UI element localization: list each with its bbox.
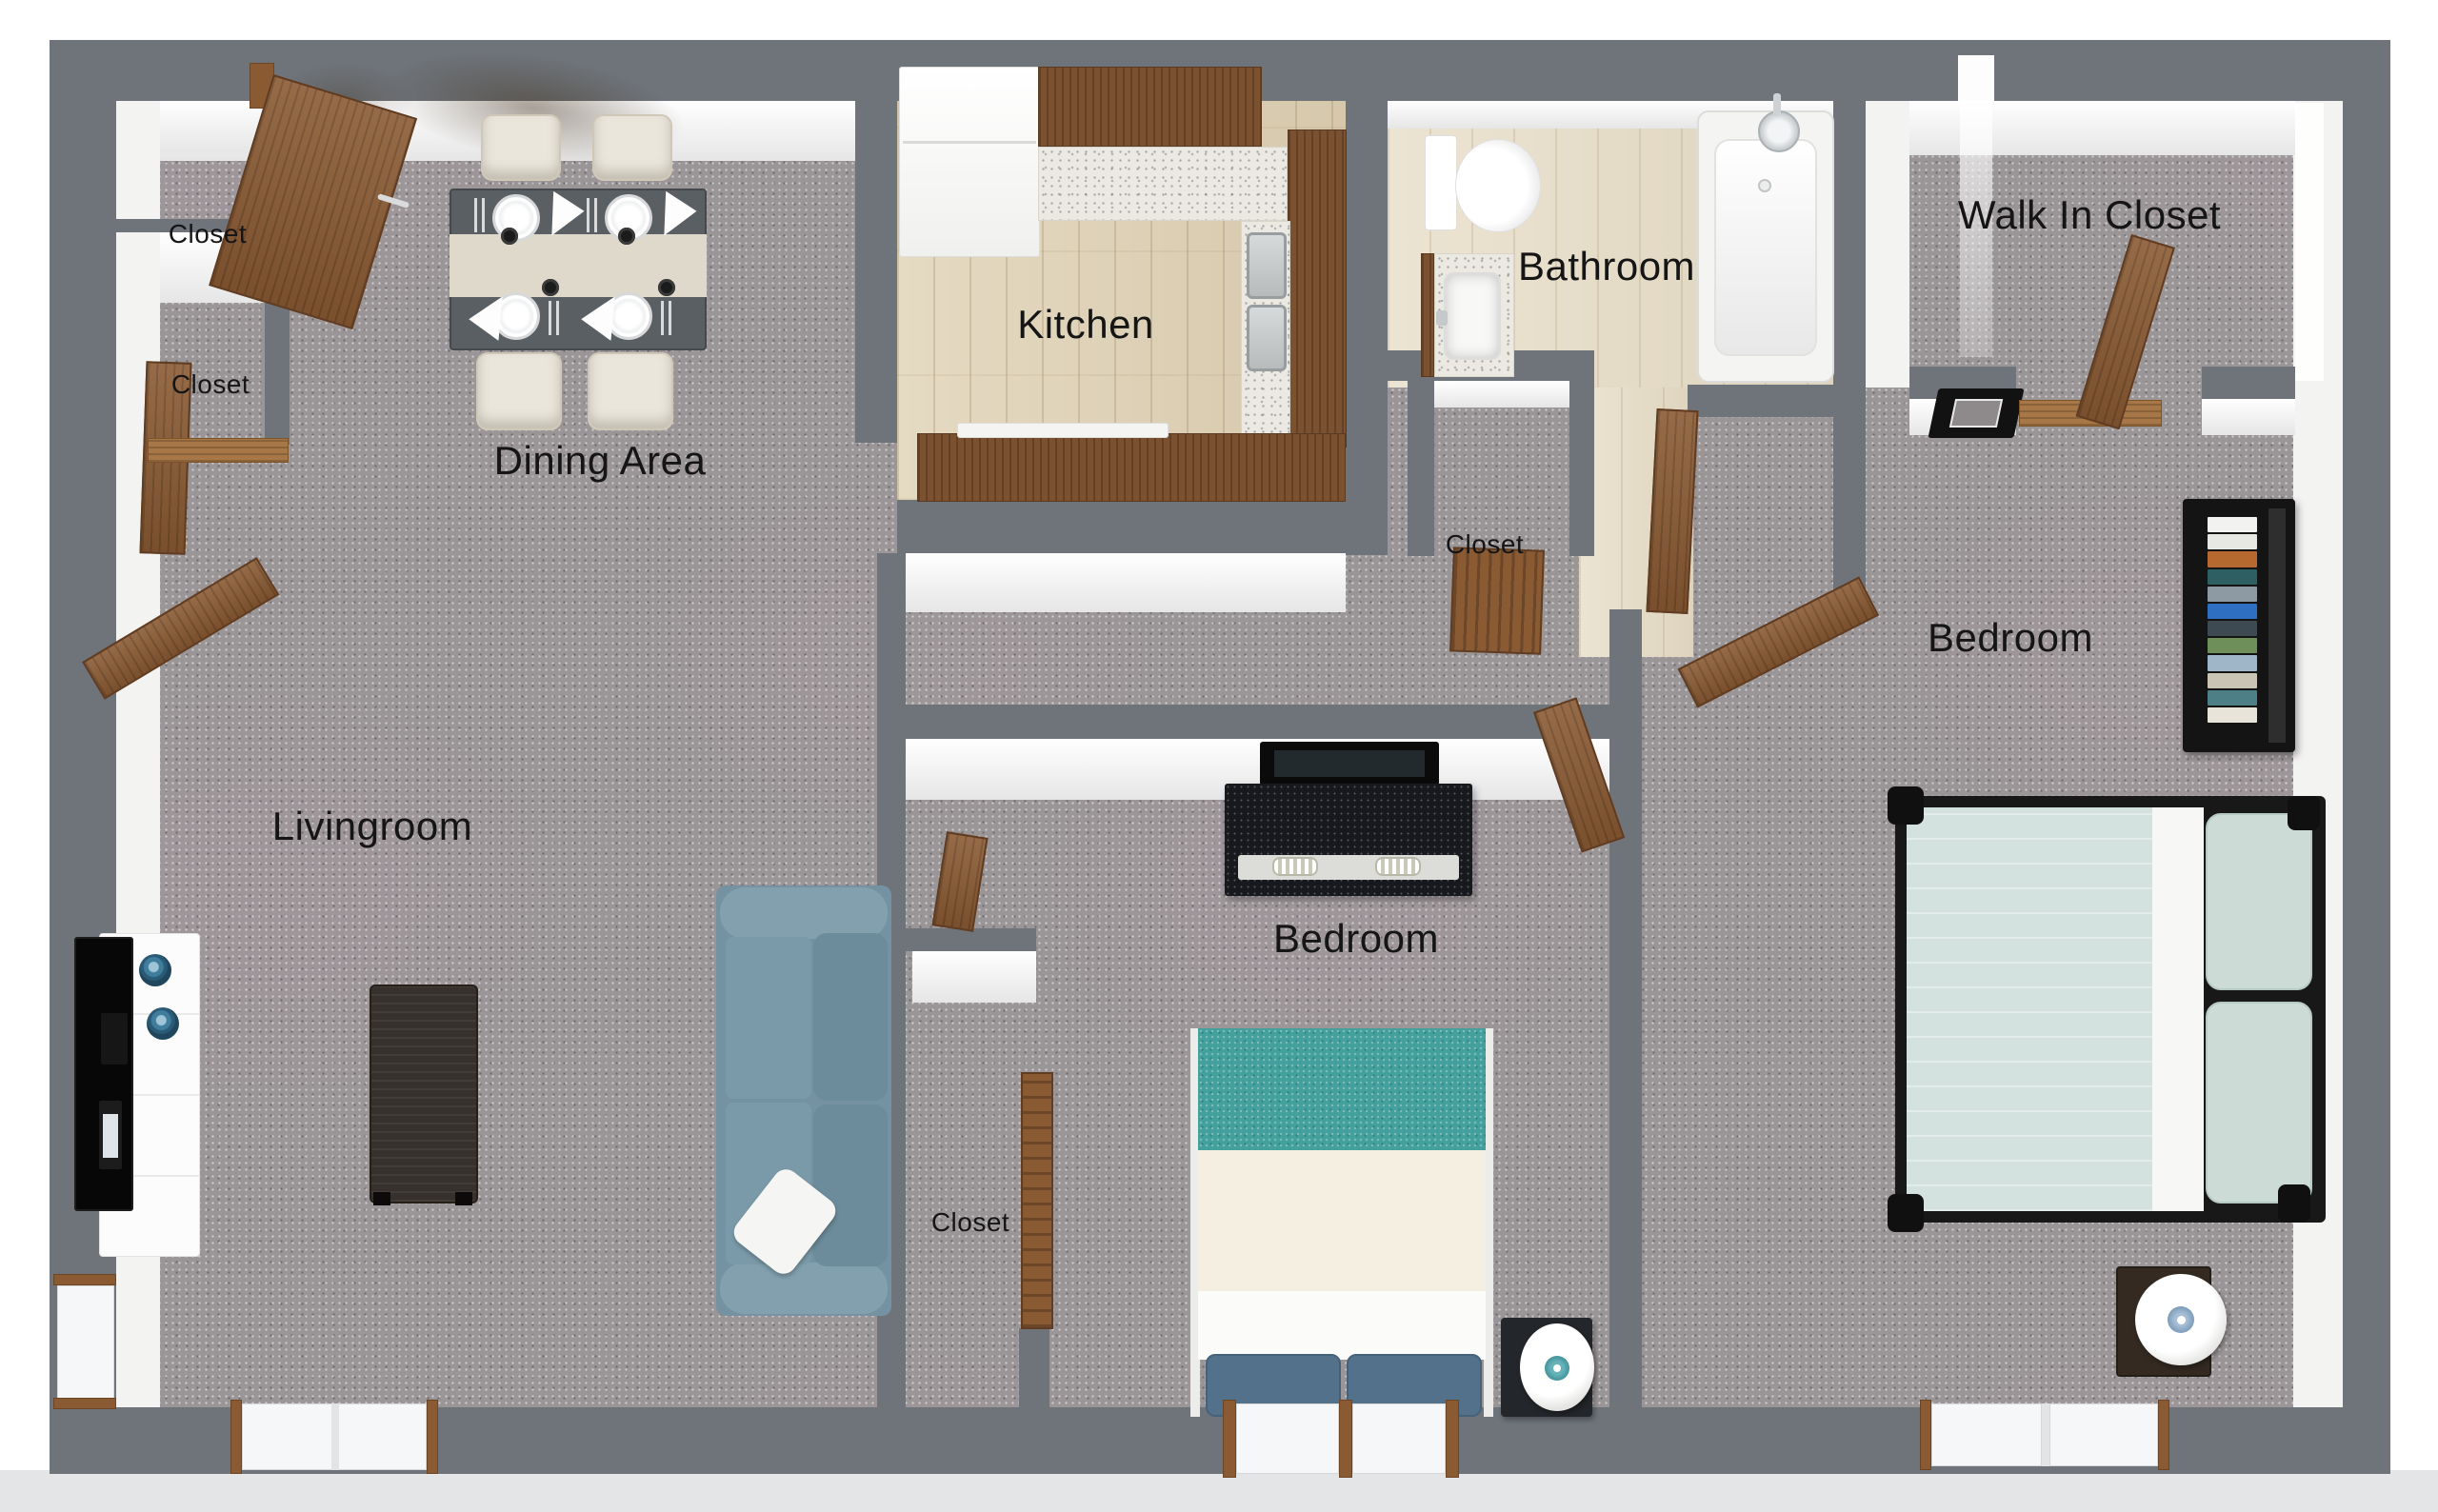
bed-sheet-white (1198, 1291, 1486, 1360)
knife (556, 301, 559, 335)
dresser-front-strip (1238, 855, 1459, 880)
book-spine (2208, 621, 2257, 636)
label-closet-hallway: Closet (1446, 529, 1524, 560)
cup (618, 228, 635, 245)
bed-post (1888, 1194, 1924, 1232)
window-jamb (1339, 1400, 1352, 1478)
exterior-slab (0, 1470, 2438, 1512)
wall-hall-closet-west (1408, 377, 1434, 556)
wall-face-walkin-west (1866, 100, 1909, 388)
dishwasher-front (957, 423, 1169, 438)
table-foot (373, 1192, 390, 1205)
wall-tv-screen (1274, 750, 1425, 777)
wall-kitchen-east (1346, 100, 1388, 555)
photo-frame-inner (103, 1114, 118, 1158)
book-spine (2208, 587, 2257, 602)
wall-middle-closet-north (897, 928, 1036, 951)
bed-post (2288, 796, 2320, 830)
window-jamb (427, 1400, 438, 1474)
wall-kitchen-south (897, 500, 1346, 553)
floor-plan: Closet Closet Dining Area Kitchen Bathro… (0, 0, 2438, 1512)
book-spine (2208, 517, 2257, 532)
cup (501, 228, 518, 245)
book-spine (2208, 551, 2257, 567)
window-jamb (230, 1400, 242, 1474)
wall-bedroom-middle-north (879, 705, 1609, 739)
window-mullion (2042, 1403, 2049, 1466)
vanity-faucet (1436, 310, 1448, 326)
dining-chair (592, 114, 672, 181)
fridge-seam (903, 141, 1036, 144)
book-spine (2208, 707, 2257, 723)
book-spine (2208, 690, 2257, 706)
wall-middle-closet-stub (1019, 1328, 1049, 1409)
wall-bathroom-east (1833, 100, 1866, 590)
window-mullion (331, 1403, 339, 1470)
light-streak (2295, 103, 2324, 381)
kitchen-sink-basin (1247, 232, 1287, 299)
label-dining-area: Dining Area (494, 438, 707, 484)
bed-duvet-teal (1198, 1028, 1486, 1150)
closet-threshold (148, 438, 289, 463)
lamp-finial (1553, 1364, 1561, 1372)
cup (658, 279, 675, 296)
knife (661, 301, 664, 335)
sofa-armrest (720, 1263, 888, 1314)
wall-walkin-south-b (2202, 367, 2295, 399)
window-jamb (1446, 1400, 1459, 1478)
wall-dining-kitchen (855, 100, 897, 443)
dining-chair (476, 352, 562, 430)
kitchen-cabinets-top (1038, 67, 1262, 147)
kitchen-cabinets-right (1288, 129, 1347, 448)
bed-pillow (2206, 813, 2312, 990)
window-jamb (53, 1398, 116, 1409)
bed-post (2278, 1184, 2310, 1223)
book-spine (2208, 638, 2257, 653)
dresser-handle (1272, 857, 1318, 876)
book-spine (2208, 604, 2257, 619)
wall-bedrooms-divider (1609, 609, 1642, 1409)
wall-face-walkin-south-b (2202, 399, 2295, 435)
window-jamb (1920, 1400, 1931, 1470)
knife (669, 301, 671, 335)
window (2049, 1403, 2158, 1466)
dining-chair (588, 352, 673, 430)
bed-post (1888, 786, 1924, 825)
bed-pillow (2206, 1002, 2312, 1204)
sofa-back-cushion (813, 1104, 888, 1266)
flat-tv (74, 937, 133, 1211)
label-closet-middle: Closet (931, 1207, 1009, 1238)
fridge (899, 67, 1040, 257)
book-spine (2208, 655, 2257, 670)
wall-face-hall-closet (1434, 381, 1569, 408)
book-spine (2208, 673, 2257, 688)
window-jamb (1223, 1400, 1236, 1478)
wall-face-kitchen-south (897, 553, 1346, 612)
bed-blanket-cream (1198, 1150, 1486, 1291)
fork (474, 198, 477, 232)
spoon (482, 198, 485, 232)
dining-chair (481, 114, 561, 181)
middle-closet-sliding-door (1021, 1072, 1053, 1329)
label-bedroom-right: Bedroom (1928, 615, 2093, 661)
bed-duvet (1907, 807, 2152, 1211)
hall-closet-door (1449, 547, 1545, 654)
window (1931, 1403, 2042, 1466)
label-bedroom-middle: Bedroom (1273, 916, 1439, 962)
toilet-tank (1425, 135, 1457, 230)
window-jamb (2158, 1400, 2169, 1470)
toilet-bowl (1455, 139, 1541, 232)
window (1352, 1403, 1446, 1474)
label-walk-in-closet: Walk In Closet (1958, 192, 2221, 238)
lamp-finial (2177, 1316, 2186, 1324)
cup (542, 279, 559, 296)
wall-right (2343, 40, 2390, 1474)
kitchen-sink-basin (1247, 305, 1287, 371)
decor-bowl (139, 954, 171, 986)
photo-frame (101, 1013, 128, 1064)
dresser-handle (1375, 857, 1421, 876)
table-foot (455, 1192, 472, 1205)
window-slit-top-wall (1958, 55, 1994, 101)
label-closet-lower-left: Closet (171, 369, 250, 400)
label-bathroom: Bathroom (1518, 244, 1695, 289)
kitchen-cabinets-bottom (917, 433, 1346, 502)
book-spine (2208, 534, 2257, 549)
book-stack (2208, 516, 2257, 724)
wall-bathroom-south (1688, 385, 1833, 417)
shower-head (1758, 110, 1800, 152)
label-closet-upper-left: Closet (169, 219, 247, 249)
vanity-sink (1444, 272, 1501, 360)
wall-face-middle-closet (912, 951, 1036, 1003)
bed-sheet-band (2152, 807, 2204, 1211)
sofa-armrest (720, 887, 888, 939)
sofa-back-cushion (813, 933, 888, 1101)
coffee-table (370, 985, 478, 1204)
bookshelf-side (2268, 508, 2286, 743)
window-jamb (53, 1274, 116, 1285)
bathtub-basin (1714, 139, 1817, 356)
vanity-cabinet-edge (1421, 253, 1434, 377)
window (1236, 1403, 1339, 1474)
wall-left (50, 40, 116, 1474)
book-spine (2208, 569, 2257, 585)
knife (549, 301, 551, 335)
label-kitchen: Kitchen (1017, 302, 1154, 348)
picture-frame-inner (1949, 399, 2003, 428)
fork (587, 198, 590, 232)
label-livingroom: Livingroom (272, 804, 472, 849)
wall-hall-closet-east (1569, 350, 1594, 556)
shower-arm (1773, 93, 1781, 116)
tub-drain (1758, 179, 1771, 192)
sofa-seat-cushion (726, 937, 811, 1099)
spoon (594, 198, 597, 232)
window (57, 1285, 114, 1400)
kitchen-counter-top (1038, 147, 1288, 221)
decor-bowl (147, 1007, 179, 1040)
